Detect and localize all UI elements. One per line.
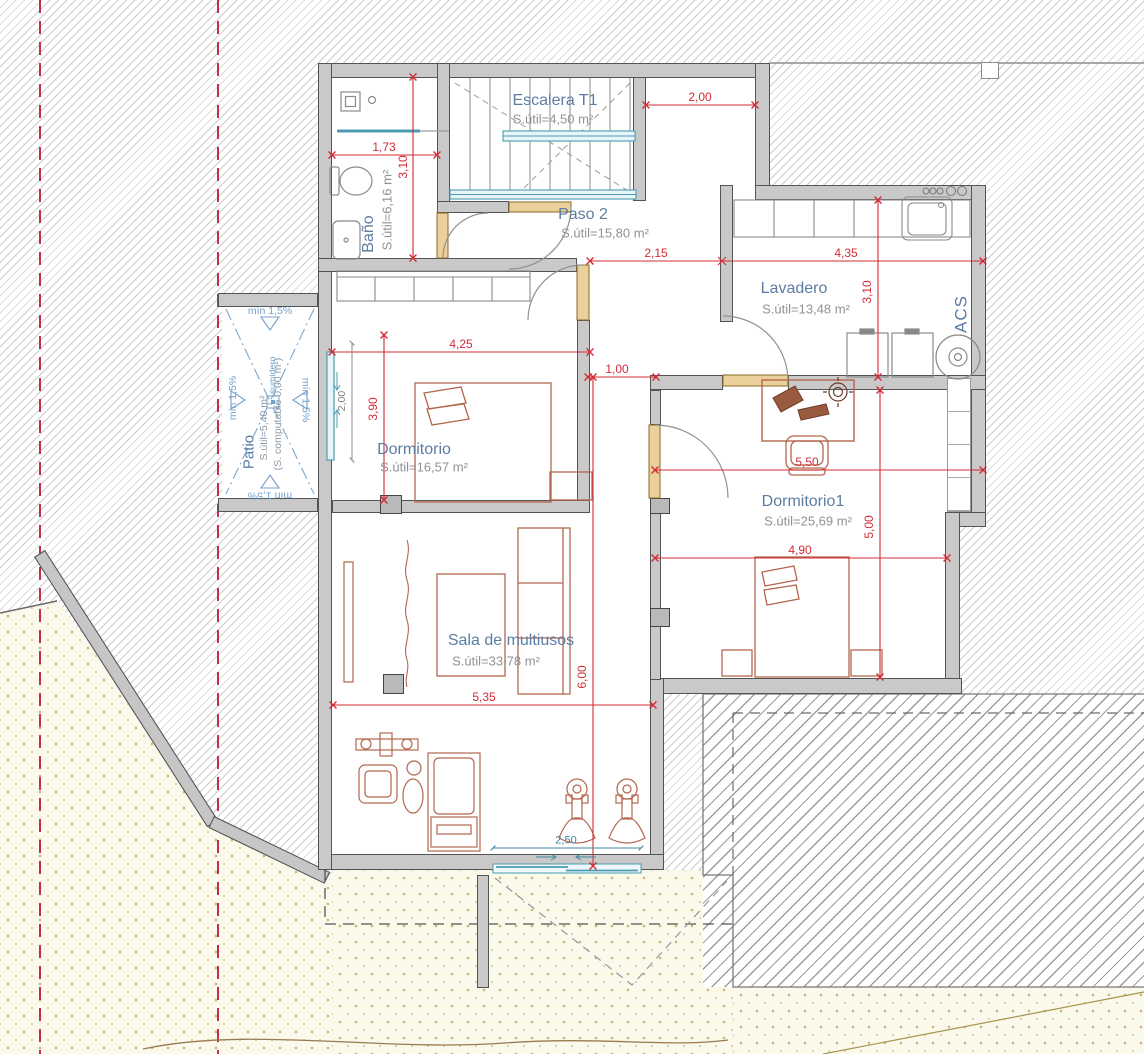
room-label-dormitorio: Dormitorio xyxy=(377,442,451,458)
dim-top-width: 2,00 xyxy=(688,91,711,103)
dim-bano-depth: 3,10 xyxy=(397,155,409,178)
sofa xyxy=(518,528,570,694)
room-label-paso: Paso 2 xyxy=(558,207,608,223)
room-area-lavadero: S.útil=13,48 m² xyxy=(762,303,850,316)
curtain-line xyxy=(406,540,409,687)
dim-sala-depth: 6,00 xyxy=(576,665,588,688)
nightstand xyxy=(550,472,592,500)
desk-dormitorio1 xyxy=(762,377,854,441)
dim-dormitorio-depth: 3,90 xyxy=(367,397,379,420)
nightstand xyxy=(851,650,882,676)
door-dormitorio1 xyxy=(649,425,728,498)
door-dormitorio xyxy=(528,265,589,320)
toilet-tank xyxy=(330,167,339,195)
room-area-sala: S.útil=33,78 m² xyxy=(452,655,540,668)
door-bano xyxy=(437,213,488,258)
room-label-dormitorio1: Dormitorio1 xyxy=(762,494,845,510)
toilet-bowl xyxy=(340,167,372,195)
shower-drain-icon xyxy=(341,92,360,111)
room-area-dormitorio: S.útil=16,57 m² xyxy=(380,461,468,474)
patio-slope-label-left: mín 1,5% xyxy=(228,376,239,420)
bathroom-sink xyxy=(333,221,360,259)
patio-drain-label: sumidero xyxy=(269,356,278,393)
room-area-bano: S.útil=6,16 m² xyxy=(381,170,394,251)
dim-bed-wall-width: 4,90 xyxy=(788,544,811,556)
gym-press-machine xyxy=(356,733,423,813)
acs-label: ACS xyxy=(953,295,970,333)
dim-lavadero-depth: 3,10 xyxy=(861,280,873,303)
acs-water-heater xyxy=(936,335,980,379)
bed-dormitorio1 xyxy=(722,557,882,677)
room-label-patio: Patio xyxy=(242,435,257,469)
patio-slope-label-bottom: mín 1,5% xyxy=(248,490,292,501)
washing-machines xyxy=(847,329,933,377)
dim-paso-width: 2,15 xyxy=(644,247,667,259)
patio-slope-label-top: mín 1,5% xyxy=(248,306,292,317)
stair-glass-rails xyxy=(450,131,636,199)
exercise-bike xyxy=(609,779,645,843)
desk-lamp-icon xyxy=(823,377,853,407)
closet-dormitorio xyxy=(337,271,530,301)
room-label-escalera: Escalera T1 xyxy=(512,93,597,109)
room-area-escalera: S.útil=4,50 m² xyxy=(513,113,594,126)
room-label-sala: Sala de multiusos xyxy=(448,633,574,649)
room-area-dormitorio1: S.útil=25,69 m² xyxy=(764,515,852,528)
dim-window-width: 2,00 xyxy=(337,391,348,411)
patio-slope-label-right: mín 1,5% xyxy=(300,378,311,422)
dim-hall-width: 1,00 xyxy=(605,363,628,375)
room-label-bano: Baño xyxy=(361,215,377,252)
room-label-lavadero: Lavadero xyxy=(761,281,828,297)
tv-cabinet xyxy=(344,562,353,682)
dim-door-width: 2,50 xyxy=(555,836,576,847)
room-area-patio: S.útil=5,40 m² xyxy=(259,395,270,460)
dim-dormitorio-width: 4,25 xyxy=(449,338,472,350)
dim-lavadero-width: 4,35 xyxy=(834,247,857,259)
lavadero-counter xyxy=(734,197,970,240)
dim-dormitorio1-width: 5,50 xyxy=(795,456,818,468)
sliding-door xyxy=(493,864,641,873)
dim-dormitorio1-depth: 5,00 xyxy=(863,515,875,538)
nightstand xyxy=(722,650,752,676)
dim-bano-width: 1,73 xyxy=(372,141,395,153)
exercise-bike xyxy=(559,779,595,843)
dim-sala-width: 5,35 xyxy=(472,691,495,703)
floor-plan-canvas: Escalera T1 S.útil=4,50 m² Paso 2 S.útil… xyxy=(0,0,1144,1054)
plan-linework xyxy=(0,0,1144,1054)
door-dimension-line xyxy=(493,848,641,860)
dish-rack-icon xyxy=(923,187,967,196)
door-lavadero xyxy=(723,316,788,386)
gym-bench xyxy=(428,753,480,851)
room-area-paso: S.útil=15,80 m² xyxy=(561,227,649,240)
